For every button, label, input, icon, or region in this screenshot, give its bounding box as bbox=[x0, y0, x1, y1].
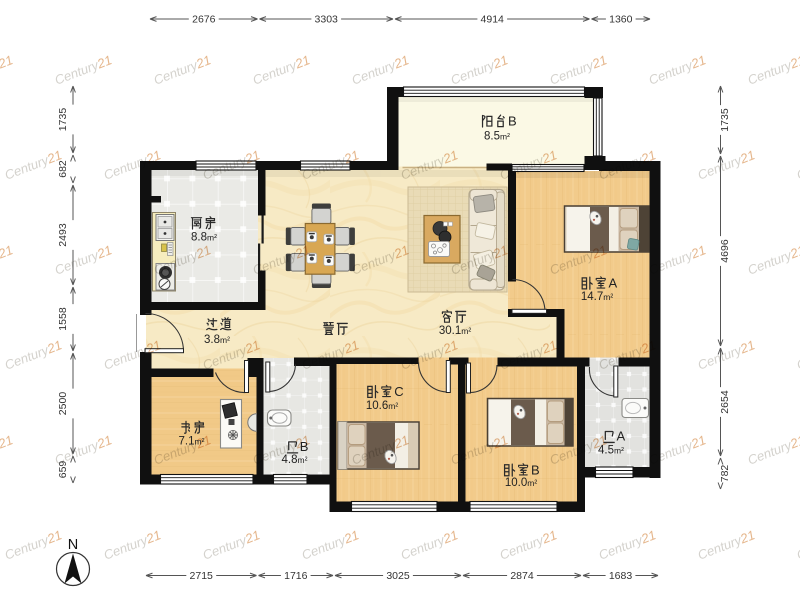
svg-text:A: A bbox=[617, 429, 626, 444]
svg-text:3303: 3303 bbox=[315, 14, 339, 26]
svg-text:B: B bbox=[508, 114, 517, 129]
svg-text:659: 659 bbox=[57, 461, 69, 479]
svg-text:1735: 1735 bbox=[719, 108, 731, 132]
svg-text:4.8m²: 4.8m² bbox=[282, 454, 308, 466]
svg-text:A: A bbox=[609, 276, 618, 291]
svg-text:1716: 1716 bbox=[284, 570, 308, 582]
svg-text:10.0m²: 10.0m² bbox=[505, 477, 537, 489]
svg-text:2676: 2676 bbox=[192, 14, 216, 26]
svg-text:1558: 1558 bbox=[57, 307, 69, 331]
svg-text:2493: 2493 bbox=[57, 223, 69, 247]
svg-text:4696: 4696 bbox=[719, 239, 731, 263]
svg-text:C: C bbox=[394, 384, 403, 399]
svg-text:3025: 3025 bbox=[386, 570, 410, 582]
svg-text:682: 682 bbox=[57, 160, 69, 178]
svg-text:14.7m²: 14.7m² bbox=[581, 291, 613, 303]
svg-text:1683: 1683 bbox=[609, 570, 633, 582]
svg-text:7.1m²: 7.1m² bbox=[179, 436, 205, 448]
svg-text:2500: 2500 bbox=[57, 392, 69, 416]
svg-text:2654: 2654 bbox=[719, 390, 731, 414]
svg-text:1735: 1735 bbox=[57, 108, 69, 132]
svg-text:B: B bbox=[531, 463, 540, 478]
svg-text:8.8m²: 8.8m² bbox=[191, 232, 217, 244]
svg-text:10.6m²: 10.6m² bbox=[366, 400, 398, 412]
svg-text:782: 782 bbox=[719, 465, 731, 483]
svg-text:8.5m²: 8.5m² bbox=[484, 131, 510, 143]
svg-text:3.8m²: 3.8m² bbox=[204, 334, 230, 346]
svg-text:4914: 4914 bbox=[481, 14, 505, 26]
svg-text:2715: 2715 bbox=[190, 570, 214, 582]
svg-text:2874: 2874 bbox=[510, 570, 534, 582]
svg-text:1360: 1360 bbox=[609, 14, 633, 26]
svg-text:N: N bbox=[68, 537, 78, 553]
svg-text:4.5m²: 4.5m² bbox=[598, 445, 624, 457]
svg-text:B: B bbox=[300, 439, 309, 454]
svg-text:30.1m²: 30.1m² bbox=[439, 325, 471, 337]
